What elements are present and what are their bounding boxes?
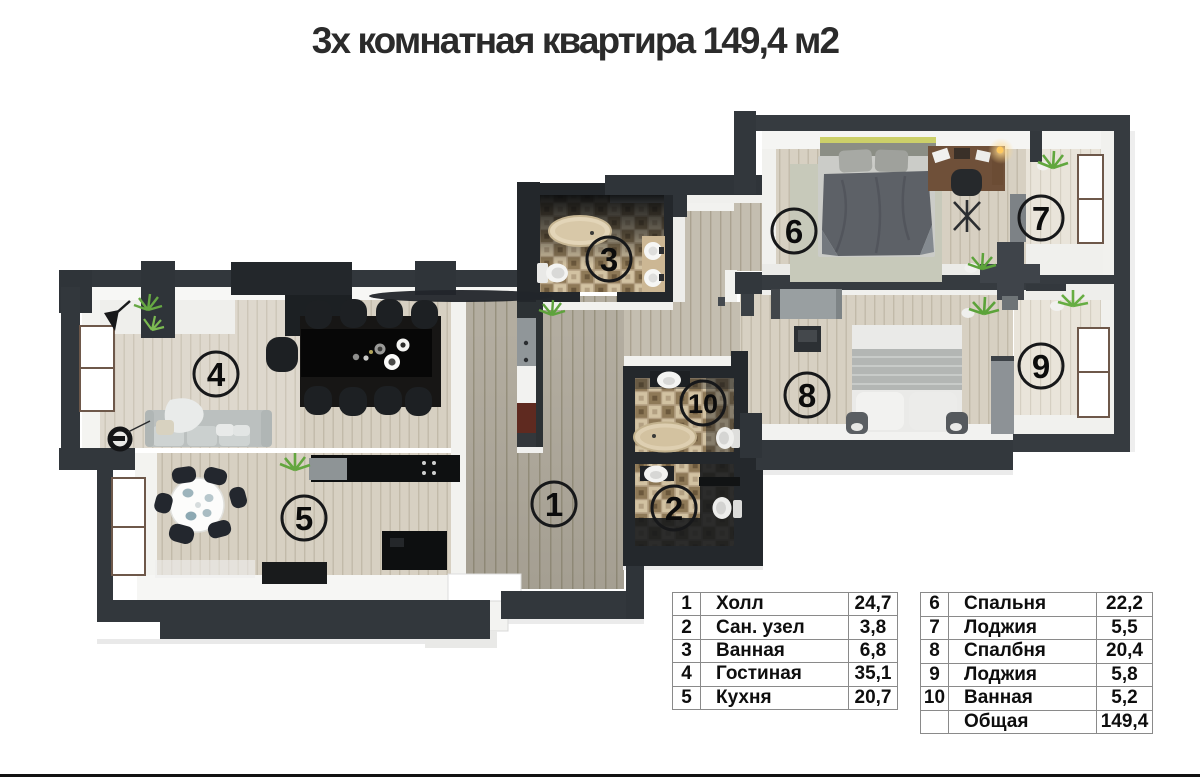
svg-text:3: 3 — [600, 241, 618, 278]
svg-text:8: 8 — [798, 377, 816, 414]
svg-text:2: 2 — [665, 490, 683, 527]
svg-text:6: 6 — [785, 213, 803, 250]
svg-text:4: 4 — [207, 356, 226, 393]
svg-text:5: 5 — [295, 500, 313, 537]
svg-text:10: 10 — [688, 389, 718, 419]
svg-text:7: 7 — [1032, 200, 1050, 237]
svg-text:1: 1 — [545, 486, 563, 523]
svg-text:9: 9 — [1032, 348, 1050, 385]
